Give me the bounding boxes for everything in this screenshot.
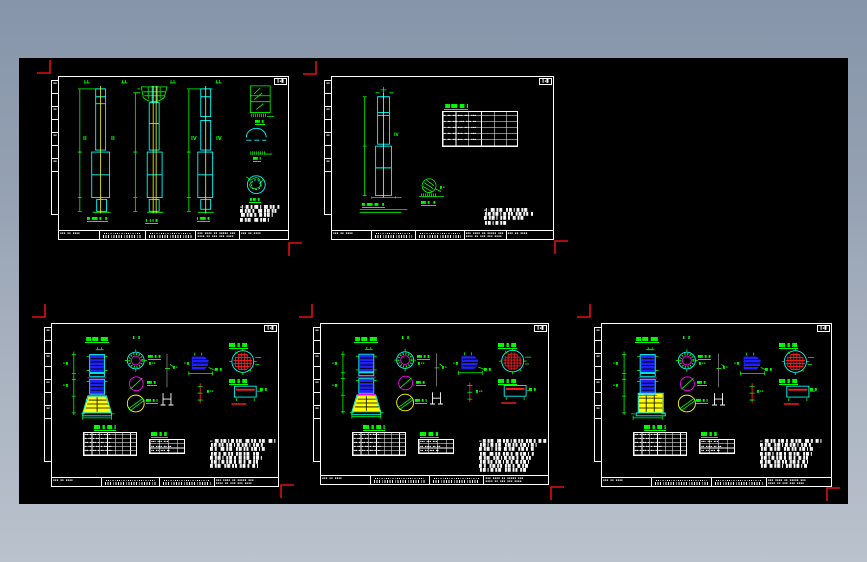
view-caption: ▌▐██▌▐▌ — [197, 217, 210, 222]
strip-cell-text: ▪▪ — [315, 380, 319, 384]
dimension-label: ▪▐▌ — [453, 362, 459, 366]
notes-text: ▪▌:▐█▌▐▌█▌ ▐▌█▌▐ █▌▐▌█▌ ▐▌█▌▐▌█▌▐ █▌▐▌█ … — [484, 208, 544, 228]
detail-title: ██▌▐▌▐█▌ — [229, 343, 248, 349]
title-block-cell — [102, 478, 161, 486]
detail-title: ██▌▐▌▐█▌ — [498, 379, 517, 385]
detail-label: █▌▐▌ — [260, 388, 268, 392]
title-block-cell — [712, 478, 767, 486]
strip-cell-text: ▪▪ — [46, 354, 50, 358]
drawing-number-box: ▌▪█ — [274, 78, 287, 85]
title-block-cell: ▪▪▪ ▪▪ ▪▪▪▪ — [321, 476, 371, 484]
title-block-cell — [416, 231, 465, 239]
section-mark-label: ▌ ▌ — [133, 336, 141, 340]
dimension-label: ▐▌▪▪ — [756, 390, 764, 394]
dimension-label: ▪▐▌ — [332, 384, 338, 388]
dimension-label: ▐▌▪▪ — [475, 390, 483, 394]
dimension-label: ▐▌▪▪ — [206, 390, 214, 394]
title-block-cell: ▪▪▪ ▪▪ ▪▪▪▪ — [332, 231, 372, 239]
section-mark-label: ▌ ▌ — [683, 336, 691, 340]
sheet-pile-foundation-details-2[interactable]: ▪▪ ▪▪ ▪▪ ▪▪ — [320, 323, 549, 485]
table-title: ██▌▐▌▐█▌▐ — [644, 425, 666, 431]
strip-cell-text: ▪▪ — [315, 354, 319, 358]
title-block-cell — [146, 231, 196, 239]
quantity-table: ▪▪▪ ▪▪▪ ▪▪▪ ▪▪ ▪▪▪▪ ▪▪ ▪▪ ▪▪ ▪▪ ▪▪▪ ▪▪ — [149, 439, 185, 454]
section-mark-label: IV — [191, 137, 197, 142]
section-mark-label: II — [83, 137, 87, 142]
section-mark-label: IV — [394, 132, 399, 137]
strip-cell-text: ▪▪ — [326, 133, 330, 137]
crop-mark — [32, 304, 45, 317]
title-block: ▪▪▪ ▪▪ ▪▪▪▪ ▪▪▪ ▪▪▪▪ ▪▪ ▪▪▪▪▪ ▪▪▪ ▪▪▪▪ ▪… — [321, 475, 548, 484]
detail-caption: ██▌▐▌ — [697, 381, 707, 386]
crop-mark — [303, 61, 316, 74]
strip-cell-text: ▪▪ — [326, 107, 330, 111]
sheet-view-title: ▐█▌██▌▐██▌ — [354, 337, 378, 343]
title-block-cell: ▪▪▪ ▪▪ ▪▪▪▪ — [59, 231, 100, 239]
sheet-pile-foundation-details-1[interactable]: ▪▪ ▪▪ ▪▪ ▪▪ — [51, 323, 279, 487]
detail-caption: ▐▌█▌▐▌ — [249, 198, 261, 203]
binding-strip: ▪▪ ▪▪ ▪▪ ▪▪ — [44, 327, 52, 462]
cad-model-space[interactable]: ▪▪ ▪▪ ▪▪ ▪▪ — [19, 58, 848, 504]
crop-mark — [289, 243, 302, 256]
detail-title: ██▌▐▌▐█▌ — [779, 379, 798, 385]
section-mark-label: II — [111, 137, 115, 142]
binding-strip: ▪▪ ▪▪ ▪▪ ▪▪ — [324, 80, 332, 215]
detail-label: █▌▐▌ — [765, 368, 773, 372]
detail-side-label: ▐▌▪ — [439, 186, 445, 190]
table-title: ▐█▌██▌▐█▌▐ — [444, 104, 468, 110]
detail-label: █▌▐▌ — [215, 368, 223, 372]
dimension-label: ▪▐▌ — [613, 384, 619, 388]
material-table: ▪▪ ▪ ▪▪ ▪ ▪ ▪▪ ▪ ▪ ▪▪ ▪ ▪▪ ▪▪ ▪ ▪▪ ▪▪ ▪ … — [633, 432, 687, 456]
binding-strip: ▪▪ ▪▪ ▪▪ ▪▪ — [51, 80, 59, 215]
detail-caption: ██▌▐▌▐ — [415, 399, 427, 404]
detail-label: █▌▐▌ — [484, 368, 492, 372]
dimension-label: ▪▐▌ — [63, 384, 69, 388]
strip-cell-text: ▪▪ — [46, 406, 50, 410]
crop-mark — [37, 60, 50, 73]
strip-cell-text: ▪▪ — [596, 380, 600, 384]
strip-cell-text: ▪▪ — [53, 81, 57, 85]
dimension-label: ▐▌▪ — [722, 366, 728, 370]
dimension-label: ▪▐▌ — [184, 362, 190, 366]
strip-cell-text: ▪▪ — [326, 81, 330, 85]
sheet-view-title: ▐█▌██▌▐██▌ — [635, 337, 659, 343]
title-block: ▪▪▪ ▪▪ ▪▪▪▪ ▪▪▪ ▪▪▪▪ ▪▪ ▪▪▪▪▪ ▪▪▪ ▪▪▪▪ ▪… — [52, 477, 278, 486]
sheet-pile-foundation-details-3[interactable]: ▪▪ ▪▪ ▪▪ ▪▪ — [601, 323, 832, 487]
title-block-cell — [372, 231, 416, 239]
table-title: ██▌▐▌▐▌ — [151, 432, 168, 438]
detail-caption: ██▌▐▌▐▌ — [698, 355, 711, 360]
view-caption: █▌▐██▌▐█▌ ▐▌ — [362, 203, 385, 208]
title-block-cell: ▪▪▪ ▪▪▪▪ ▪▪ ▪▪▪▪▪ ▪▪▪ ▪▪▪▪ ▪▪ ▪▪▪ ▪▪▪ ▪▪… — [484, 476, 548, 484]
section-mark-label: IV — [216, 137, 222, 142]
title-block-cell: ▪▪▪ ▪▪ ▪▪▪▪ — [52, 478, 102, 486]
title-block: ▪▪▪ ▪▪ ▪▪▪▪ ▪▪▪ ▪▪▪▪ ▪▪ ▪▪▪▪▪ ▪▪▪ ▪▪▪▪ ▪… — [59, 230, 288, 239]
material-table: ▪▪ ▪ ▪▪ ▪ ▪ ▪▪ ▪ ▪ ▪▪ ▪ ▪▪ ▪▪ ▪ ▪▪ ▪▪ ▪ … — [352, 432, 406, 456]
title-block-cell — [430, 476, 484, 484]
strip-cell-text: ▪▪ — [596, 354, 600, 358]
dimension-label: ▪▐▌ — [734, 362, 740, 366]
crop-mark — [577, 304, 590, 317]
detail-sub-label: ▐▌▪▪ — [417, 362, 425, 366]
detail-sub-label: ▐▌▪▪ — [698, 362, 706, 366]
crop-mark — [299, 304, 312, 317]
drawing-number-box: ▌▪█ — [534, 325, 547, 332]
detail-caption: ██▌▐▌▐ — [696, 399, 708, 404]
strip-cell-text: ▪▪ — [596, 406, 600, 410]
sheet-view-title: ▐█▌██▌▐██▌ — [85, 337, 109, 343]
strip-cell-text: ▪▪ — [596, 328, 600, 332]
rebar-schedule-table: ▪ ▪▪ ▪▪ ▪▪▪ ▪▪▪ ▪▪▪ ▪ ▪▪ ▪▪▪ ▪▪▪ ▪▪▪ ▪▪ … — [442, 111, 518, 147]
table-title: ██▌▐█▌▐▌ — [420, 432, 439, 438]
strip-cell-text: ▪▪ — [53, 133, 57, 137]
strip-cell-text: ▪▪ — [46, 380, 50, 384]
detail-caption: ██▌▐ — [253, 157, 261, 162]
material-table: ▪▪ ▪ ▪▪ ▪ ▪ ▪▪ ▪ ▪ ▪▪ ▪ ▪▪ ▪▪ ▪ ▪▪ ▪▪ ▪ … — [83, 432, 137, 456]
sheet-column-elevation-rebar-table[interactable]: ▪▪ ▪▪ ▪▪ ▪▪ ▌▪█ IV █▌▐██▌▐█▌ — [331, 76, 554, 240]
detail-label: █▌▐▌ — [529, 388, 537, 392]
detail-title: ██▌▐▌▐█▌ — [498, 343, 517, 349]
detail-title: ██▌▐▌▐█▌ — [229, 379, 248, 385]
binding-strip: ▪▪ ▪▪ ▪▪ ▪▪ — [594, 327, 602, 462]
strip-cell-text: ▪▪ — [53, 107, 57, 111]
quantity-table: ▪▪▪ ▪▪▪ ▪▪▪ ▪▪ ▪▪▪▪ ▪▪ ▪▪ ▪▪ ▪▪ ▪▪▪ ▪▪ — [699, 439, 735, 454]
sheet-pier-column-elevations[interactable]: ▪▪ ▪▪ ▪▪ ▪▪ — [58, 76, 289, 240]
notes-text: ▪▌:█▌▐▌▐█▌▐ ▐█▌▐▌█ ▐▌ █▌▐▌█▌▐▌ ▐█▌▐▌█▌▐▌… — [240, 205, 288, 229]
title-block-cell: ▪▪▪ ▪▪▪▪ ▪▪ ▪▪▪▪▪ ▪▪▪ ▪▪▪▪ ▪▪ ▪▪▪ ▪▪▪ ▪▪… — [465, 231, 507, 239]
crop-mark — [551, 487, 564, 500]
detail-caption: ██▌▐▌ — [416, 381, 426, 386]
cad-application-desktop: ▪▪ ▪▪ ▪▪ ▪▪ — [0, 0, 867, 562]
detail-sub-label: ▐▌▪▪ — [148, 362, 156, 366]
title-block: ▪▪▪ ▪▪ ▪▪▪▪ ▪▪▪ ▪▪▪▪ ▪▪ ▪▪▪▪▪ ▪▪▪ ▪▪▪▪ ▪… — [332, 230, 553, 239]
crop-mark — [827, 488, 840, 501]
dimension-label: ▪▐▌ — [332, 362, 338, 366]
strip-cell-text: ▪▪ — [315, 406, 319, 410]
drawing-number-box: ▌▪█ — [264, 325, 277, 332]
dimension-label: ▐▌▪ — [172, 366, 178, 370]
crop-mark — [281, 485, 294, 498]
detail-caption: ██▌▐▌ ▐▌ — [421, 201, 436, 206]
title-block-cell: ▪▪▪ ▪▪ ▪▪▪▪ — [602, 478, 652, 486]
strip-cell-text: ▪▪ — [326, 159, 330, 163]
dimension-label: ▪▐▌ — [613, 362, 619, 366]
strip-cell-text: ▪▪ — [46, 328, 50, 332]
title-block: ▪▪▪ ▪▪ ▪▪▪▪ ▪▪▪ ▪▪▪▪ ▪▪ ▪▪▪▪▪ ▪▪▪ ▪▪▪▪ ▪… — [602, 477, 831, 486]
title-block-cell: ▪▪▪ ▪▪ ▪▪▪▪ — [507, 231, 553, 239]
title-block-cell — [100, 231, 146, 239]
title-block-cell — [652, 478, 712, 486]
title-block-cell: ▪▪▪ ▪▪ ▪▪▪▪ — [240, 231, 288, 239]
detail-caption: ██▌▐▌▐▌ — [417, 355, 430, 360]
detail-caption: ██▌▐▌▐ — [146, 399, 158, 404]
detail-label: █▌▐▌ — [810, 388, 818, 392]
notes-text: ▪:▐█▌▐▌█▌▐ █▌▐▌█▌ ▐█▌▐▌█ ▐▌█▌ ▐█▌▐ ▐▌█▌▐… — [210, 439, 278, 476]
drawing-number-box: ▌▪█ — [539, 78, 552, 85]
detail-caption: ██▌▐▌ — [147, 381, 157, 386]
view-caption: ▐-▐ ▌▐▌ — [145, 219, 158, 224]
quantity-table: ▪▪▪ ▪▪▪ ▪▪▪ ▪▪ ▪▪▪▪ ▪▪ ▪▪ ▪▪ ▪▪ ▪▪▪ ▪▪ — [418, 439, 454, 454]
strip-cell-text: ▪▪ — [53, 159, 57, 163]
dimension-label: ▐▌▪ — [441, 366, 447, 370]
title-block-cell: ▪▪▪ ▪▪▪▪ ▪▪ ▪▪▪▪▪ ▪▪▪ ▪▪▪▪ ▪▪ ▪▪▪ ▪▪▪ ▪▪… — [196, 231, 240, 239]
detail-caption: ██▌▐▌ — [255, 120, 265, 125]
detail-title: ██▌▐▌▐█▌ — [779, 343, 798, 349]
table-title: ██▌▐▌▐▌ — [701, 432, 718, 438]
detail-caption: ██▌▐▌▐▌ — [148, 355, 161, 360]
crop-mark — [555, 241, 568, 254]
strip-cell-text: ▪▪ — [315, 328, 319, 332]
title-block-cell — [160, 478, 214, 486]
table-title: ██▌▐▌▐█▌▐ — [94, 425, 116, 431]
drawing-number-box: ▌▪█ — [817, 325, 830, 332]
title-block-cell: ▪▪▪ ▪▪▪▪ ▪▪ ▪▪▪▪▪ ▪▪▪ ▪▪▪▪ ▪▪ ▪▪▪ ▪▪▪ ▪▪… — [767, 478, 831, 486]
binding-strip: ▪▪ ▪▪ ▪▪ ▪▪ — [313, 327, 321, 462]
title-block-cell: ▪▪▪ ▪▪▪▪ ▪▪ ▪▪▪▪▪ ▪▪▪ ▪▪▪▪ ▪▪ ▪▪▪ ▪▪▪ ▪▪… — [215, 478, 278, 486]
dimension-label: ▪▐▌ — [63, 362, 69, 366]
view-caption: █▌▐██▌▐▌ ▐▌ — [87, 217, 108, 222]
notes-text: ▪:▐█▌▐▌█ ▐▌█▌▐▌ █▌▐▌█▌ ▐█▌▐▌ █▌▐ █▌▐▌█▌ … — [760, 439, 828, 476]
title-block-cell — [371, 476, 430, 484]
table-title: ██▌▐▌▐█▌▐ — [363, 425, 385, 431]
notes-text: ▪:█▌▐▌█▌ ▐█▌▐▌█▌▐ █▌▐▌█ ▐▌█▌▐▌ █▌▐█ ▐▌█▌… — [479, 439, 547, 476]
section-mark-label: ▌ ▌ — [402, 336, 410, 340]
